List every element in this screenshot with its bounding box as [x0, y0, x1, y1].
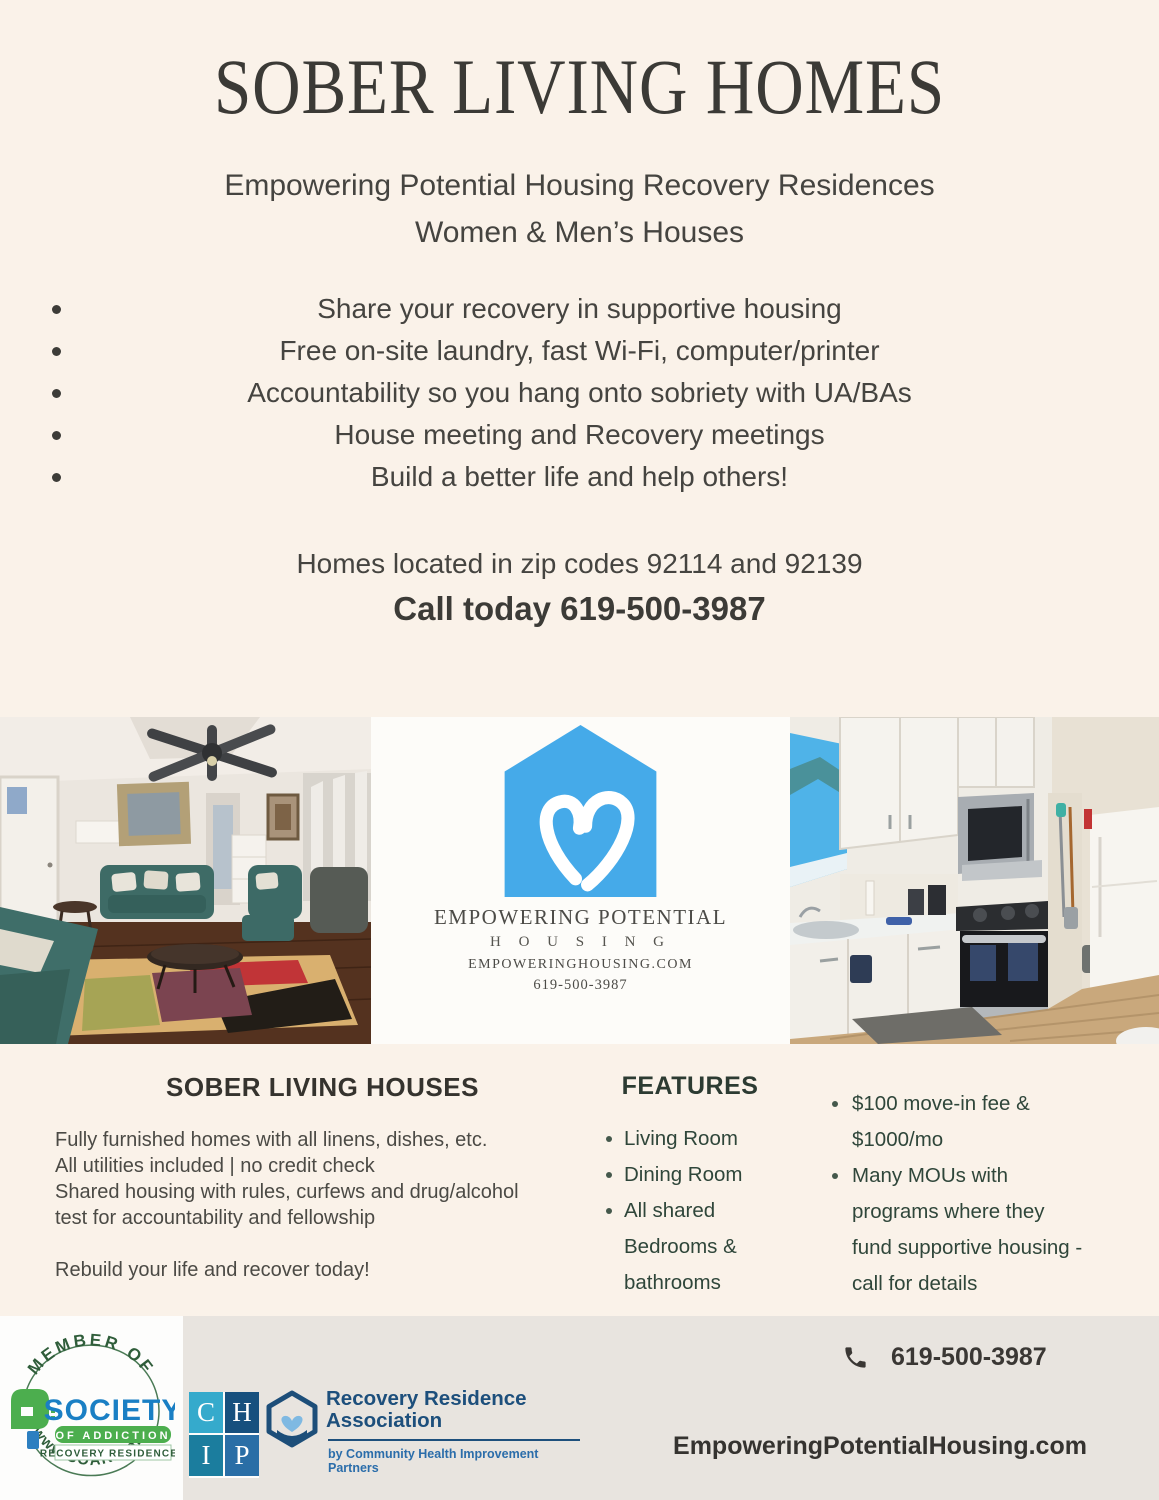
bullet-icon: [832, 1173, 838, 1179]
list-item-text: bathrooms: [624, 1265, 793, 1301]
list-item-text: Many MOUs with: [852, 1158, 1152, 1194]
rra-house-heart-icon: [266, 1390, 318, 1448]
list-item: Build a better life and help others!: [0, 456, 1159, 498]
section-pricing: $100 move-in fee & $1000/mo Many MOUs wi…: [822, 1086, 1152, 1302]
chip-letter-h: H: [225, 1392, 259, 1433]
bullet-icon: [52, 347, 61, 356]
list-item: Free on-site laundry, fast Wi-Fi, comput…: [0, 330, 1159, 372]
list-item: Share your recovery in supportive housin…: [0, 288, 1159, 330]
bullet-icon: [52, 305, 61, 314]
list-item: Dining Room: [598, 1157, 793, 1193]
bullet-icon: [52, 389, 61, 398]
footer: MEMBER OF www.SOARR.org SOCIETY OF ADDIC…: [0, 1316, 1159, 1500]
svg-text:MEMBER OF: MEMBER OF: [24, 1330, 158, 1378]
list-item-text: $100 move-in fee &: [852, 1086, 1152, 1122]
rra-logo: Recovery Residence Association by Commun…: [266, 1388, 541, 1475]
list-item-text: Free on-site laundry, fast Wi-Fi, comput…: [279, 335, 879, 366]
list-item: Living Room: [598, 1121, 793, 1157]
chip-logo: C H I P: [189, 1392, 259, 1478]
description-paragraph: Fully furnished homes with all linens, d…: [55, 1127, 590, 1231]
section-sober-living-houses: SOBER LIVING HOUSES Fully furnished home…: [55, 1072, 590, 1282]
bullet-icon: [52, 431, 61, 440]
logo-name-line1: EMPOWERING POTENTIAL: [434, 905, 727, 930]
soarr-member-badge: MEMBER OF www.SOARR.org SOCIETY OF ADDIC…: [7, 1327, 175, 1489]
footer-phone-number: 619-500-3987: [891, 1343, 1047, 1372]
page-title: SOBER LIVING HOMES: [81, 42, 1078, 132]
list-item-text: Accountability so you hang onto sobriety…: [247, 377, 912, 408]
rra-name-line2: Association: [326, 1410, 541, 1432]
soarr-of-addiction-text: OF ADDICTION: [55, 1430, 170, 1442]
sofa: [100, 865, 214, 919]
list-item: Many MOUs with programs where they fund …: [822, 1158, 1152, 1302]
description-line: Fully furnished homes with all linens, d…: [55, 1127, 590, 1153]
subtitle-line1: Empowering Potential Housing Recovery Re…: [0, 162, 1159, 209]
soarr-society-text: SOCIETY: [44, 1394, 175, 1427]
benefits-list: Share your recovery in supportive housin…: [0, 288, 1159, 498]
footer-phone-row: 619-500-3987: [842, 1343, 1047, 1372]
location-line: Homes located in zip codes 92114 and 921…: [0, 548, 1159, 580]
subtitle: Empowering Potential Housing Recovery Re…: [0, 162, 1159, 256]
list-item-text: fund supportive housing -: [852, 1230, 1152, 1266]
soarr-badge-box: MEMBER OF www.SOARR.org SOCIETY OF ADDIC…: [0, 1316, 183, 1500]
cta-text: Rebuild your life and recover today!: [55, 1259, 590, 1282]
features-list: Living Room Dining Room All shared Bedro…: [598, 1121, 793, 1301]
description-line: All utilities included | no credit check: [55, 1153, 590, 1179]
kitchen-photo: [790, 717, 1159, 1044]
list-item: House meeting and Recovery meetings: [0, 414, 1159, 456]
bullet-icon: [52, 473, 61, 482]
flyer-page: SOBER LIVING HOMES Empowering Potential …: [0, 0, 1159, 1500]
logo-name-line2: H O U S I N G: [490, 934, 671, 951]
bullet-icon: [606, 1172, 612, 1178]
list-item-text: Living Room: [624, 1121, 793, 1157]
subtitle-line2: Women & Men’s Houses: [0, 209, 1159, 256]
section-features: FEATURES Living Room Dining Room All sha…: [598, 1072, 793, 1301]
house-heart-logo-icon: [503, 725, 658, 897]
rra-divider: [328, 1439, 580, 1441]
list-item-text: call for details: [852, 1266, 1152, 1302]
call-to-action-phone: Call today 619-500-3987: [0, 590, 1159, 628]
logo-phone: 619-500-3987: [533, 977, 627, 994]
bullet-icon: [606, 1136, 612, 1142]
logo-website: EMPOWERINGHOUSING.COM: [468, 957, 693, 973]
list-item-text: All shared: [624, 1193, 793, 1229]
bullet-icon: [832, 1101, 838, 1107]
chip-letter-c: C: [189, 1392, 223, 1433]
soarr-arc-top: MEMBER OF: [24, 1330, 158, 1378]
list-item: Accountability so you hang onto sobriety…: [0, 372, 1159, 414]
chip-letter-p: P: [225, 1435, 259, 1476]
soarr-recovery-residences-text: RECOVERY RESIDENCES: [40, 1449, 175, 1460]
footer-website: EmpoweringPotentialHousing.com: [640, 1432, 1120, 1461]
list-item-text: Build a better life and help others!: [371, 461, 788, 492]
description-line: test for accountability and fellowship: [55, 1205, 590, 1231]
rra-name-line1: Recovery Residence: [326, 1388, 541, 1410]
phone-icon: [842, 1344, 869, 1371]
list-item-text: $1000/mo: [852, 1122, 1152, 1158]
bullet-icon: [606, 1208, 612, 1214]
list-item: All shared Bedrooms & bathrooms: [598, 1193, 793, 1301]
chip-letter-i: I: [189, 1435, 223, 1476]
section-heading: FEATURES: [610, 1072, 770, 1101]
list-item: $100 move-in fee & $1000/mo: [822, 1086, 1152, 1158]
list-item-text: House meeting and Recovery meetings: [334, 419, 824, 450]
rra-byline: by Community Health Improvement Partners: [328, 1447, 541, 1475]
list-item-text: Share your recovery in supportive housin…: [317, 293, 842, 324]
photo-strip: EMPOWERING POTENTIAL H O U S I N G EMPOW…: [0, 717, 1159, 1044]
description-line: Shared housing with rules, curfews and d…: [55, 1179, 590, 1205]
logo-panel: EMPOWERING POTENTIAL H O U S I N G EMPOW…: [371, 717, 790, 1044]
list-item-text: Dining Room: [624, 1157, 793, 1193]
section-heading: SOBER LIVING HOUSES: [55, 1072, 590, 1103]
living-room-photo: [0, 717, 371, 1044]
list-item-text: Bedrooms &: [624, 1229, 793, 1265]
list-item-text: programs where they: [852, 1194, 1152, 1230]
